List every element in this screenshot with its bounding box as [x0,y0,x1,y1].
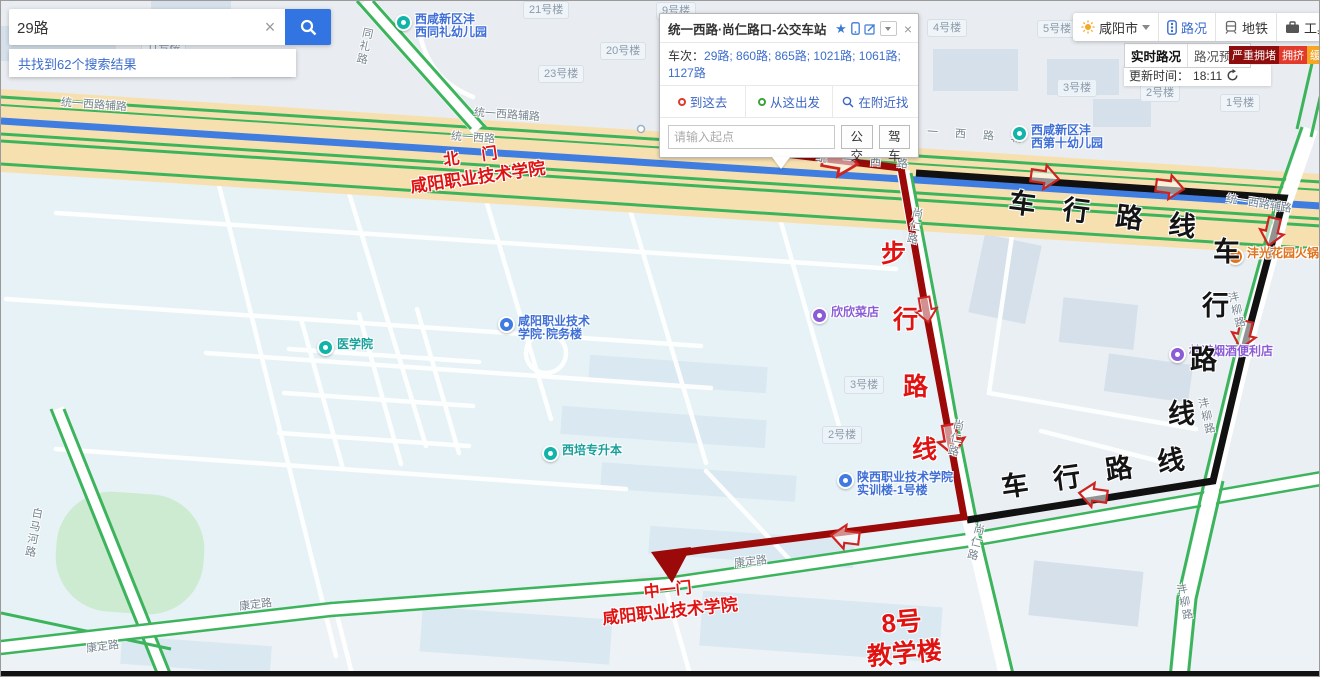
traffic-light-icon [1167,20,1177,35]
search-input[interactable] [9,11,255,43]
refresh-icon[interactable] [1226,69,1239,82]
city-selector[interactable]: 咸阳市 [1073,13,1158,41]
routes-label: 车次： [668,49,704,63]
tab-realtime-traffic[interactable]: 实时路况 [1125,44,1187,67]
close-icon[interactable]: × [904,21,912,37]
popup-bus-routes: 车次：29路; 860路; 865路; 1021路; 1061路; 1127路 [660,43,918,86]
building-label: 1号楼 [1220,94,1260,112]
walk-route-char: 线 [912,430,937,466]
drive-route-char: 线 [1168,392,1195,431]
poi-kindergarten-tenth[interactable]: 西咸新区沣西第十幼儿园 [1011,124,1103,150]
poi-pin-icon [1011,125,1028,142]
walk-route-char: 路 [903,367,928,403]
drive-button[interactable]: 驾车 [879,125,911,149]
poi-yuanwu-building[interactable]: 咸阳职业技术学院·院务楼 [498,315,590,341]
traffic-update-row: 更新时间： 18:11 [1124,65,1271,86]
poi-shop-icon [811,307,828,324]
update-time-label: 更新时间： [1129,67,1189,84]
legend-slow: 缓行 [1307,46,1320,64]
drive-route-char: 车 [998,462,1030,504]
legend-severe: 严重拥堵 [1229,46,1279,64]
building-label: 2号楼 [822,426,862,444]
search-button[interactable] [285,9,331,45]
drive-route-char: 车 [1213,230,1240,269]
map-toolbar: 咸阳市 路况 地铁 工具箱 [1073,13,1320,41]
walk-route-char: 步 [881,234,906,270]
poi-pin-icon [317,339,334,356]
poi-xipei[interactable]: 西培专升本 [542,444,622,462]
drive-route-char: 线 [1167,203,1199,245]
tab-go-here[interactable]: 到这去 [660,86,745,117]
toolbox-menu[interactable]: 工具箱 [1276,13,1320,41]
popup-title: 统一西路·尚仁路口-公交车站 [668,19,831,38]
building-label: 5号楼 [1037,20,1077,38]
walk-route-char: 行 [893,300,918,336]
poi-shop-icon [1169,346,1186,363]
building-label: 21号楼 [523,1,569,19]
transit-button[interactable]: 公交 [841,125,873,149]
building-label: 23号楼 [538,65,584,83]
nearby-search-icon [842,96,854,108]
road-label-kangding: 康定路 [733,551,767,570]
metro-toggle[interactable]: 地铁 [1215,13,1276,41]
poi-school-icon [837,472,854,489]
poi-shixun-building[interactable]: 陕西职业技术学院实训楼-1号楼 [837,471,953,497]
building-label: 4号楼 [927,19,967,37]
drive-route-char: 车 [1007,181,1039,223]
map-viewport[interactable]: 统一西路辅路 同礼路 统一西路辅路 统一西路 统一西路辅路 统一西路 统一西路辅… [0,0,1320,677]
favorite-star-icon[interactable]: ★ [835,21,847,37]
drive-route-char: 路 [1190,338,1217,377]
tab-start-here[interactable]: 从这出发 [745,86,831,117]
mobile-icon[interactable] [851,22,860,35]
metro-icon [1224,20,1238,34]
building8-annotation: 8号 教学楼 [850,602,955,674]
poi-school-icon [498,316,515,333]
tab-search-nearby[interactable]: 在附近找 [832,86,918,117]
legend-congested: 拥挤 [1279,46,1307,64]
bus-stop-popup: 统一西路·尚仁路口-公交车站 ★ × 车次：29路; 860路; 865路; 1… [659,13,919,158]
weather-sun-icon [1081,20,1095,34]
drive-route-char: 路 [1114,195,1146,237]
more-dropdown-icon[interactable] [880,21,897,36]
origin-input[interactable] [668,125,835,149]
drive-route-char: 行 [1061,188,1093,230]
poi-pin-icon [542,445,559,462]
destination-dot-icon [678,98,686,106]
building-label: 2号楼 [1140,84,1180,102]
clear-search-icon[interactable]: × [255,17,285,38]
search-icon [300,19,317,36]
drive-route-char: 路 [1102,445,1134,487]
search-bar: × [9,9,331,45]
drive-route-char: 线 [1154,437,1186,479]
toolbox-icon [1285,21,1300,34]
traffic-toggle[interactable]: 路况 [1158,13,1215,41]
road-node-marker [638,126,645,133]
drive-route-char: 行 [1202,284,1229,323]
poi-hotpot[interactable]: 沣光花园火锅店 [1227,247,1320,265]
road-label-main: 统一西路 [450,127,495,146]
poi-pin-icon [395,14,412,31]
drive-route-char: 行 [1050,454,1082,496]
origin-dot-icon [758,98,766,106]
building-label: 20号楼 [600,42,646,60]
popup-pointer [772,157,790,178]
traffic-legend: 严重拥堵 拥挤 缓行 畅通 [1229,46,1320,64]
edit-icon[interactable] [864,23,876,35]
poi-xinxin-grocery[interactable]: 欣欣菜店 [811,306,879,324]
building-label: 3号楼 [844,376,884,394]
bottom-border-bar [1,671,1320,677]
building-label: 3号楼 [1057,79,1097,97]
search-results-summary[interactable]: 共找到62个搜索结果 [9,49,296,77]
chevron-down-icon [1142,25,1150,34]
poi-kindergarten-tongli[interactable]: 西咸新区沣西同礼幼儿园 [395,13,487,39]
update-time-value: 18:11 [1193,69,1222,83]
poi-convenience[interactable]: 林诺烟酒便利店 [1169,345,1273,363]
poi-medical-school[interactable]: 医学院 [317,338,373,356]
